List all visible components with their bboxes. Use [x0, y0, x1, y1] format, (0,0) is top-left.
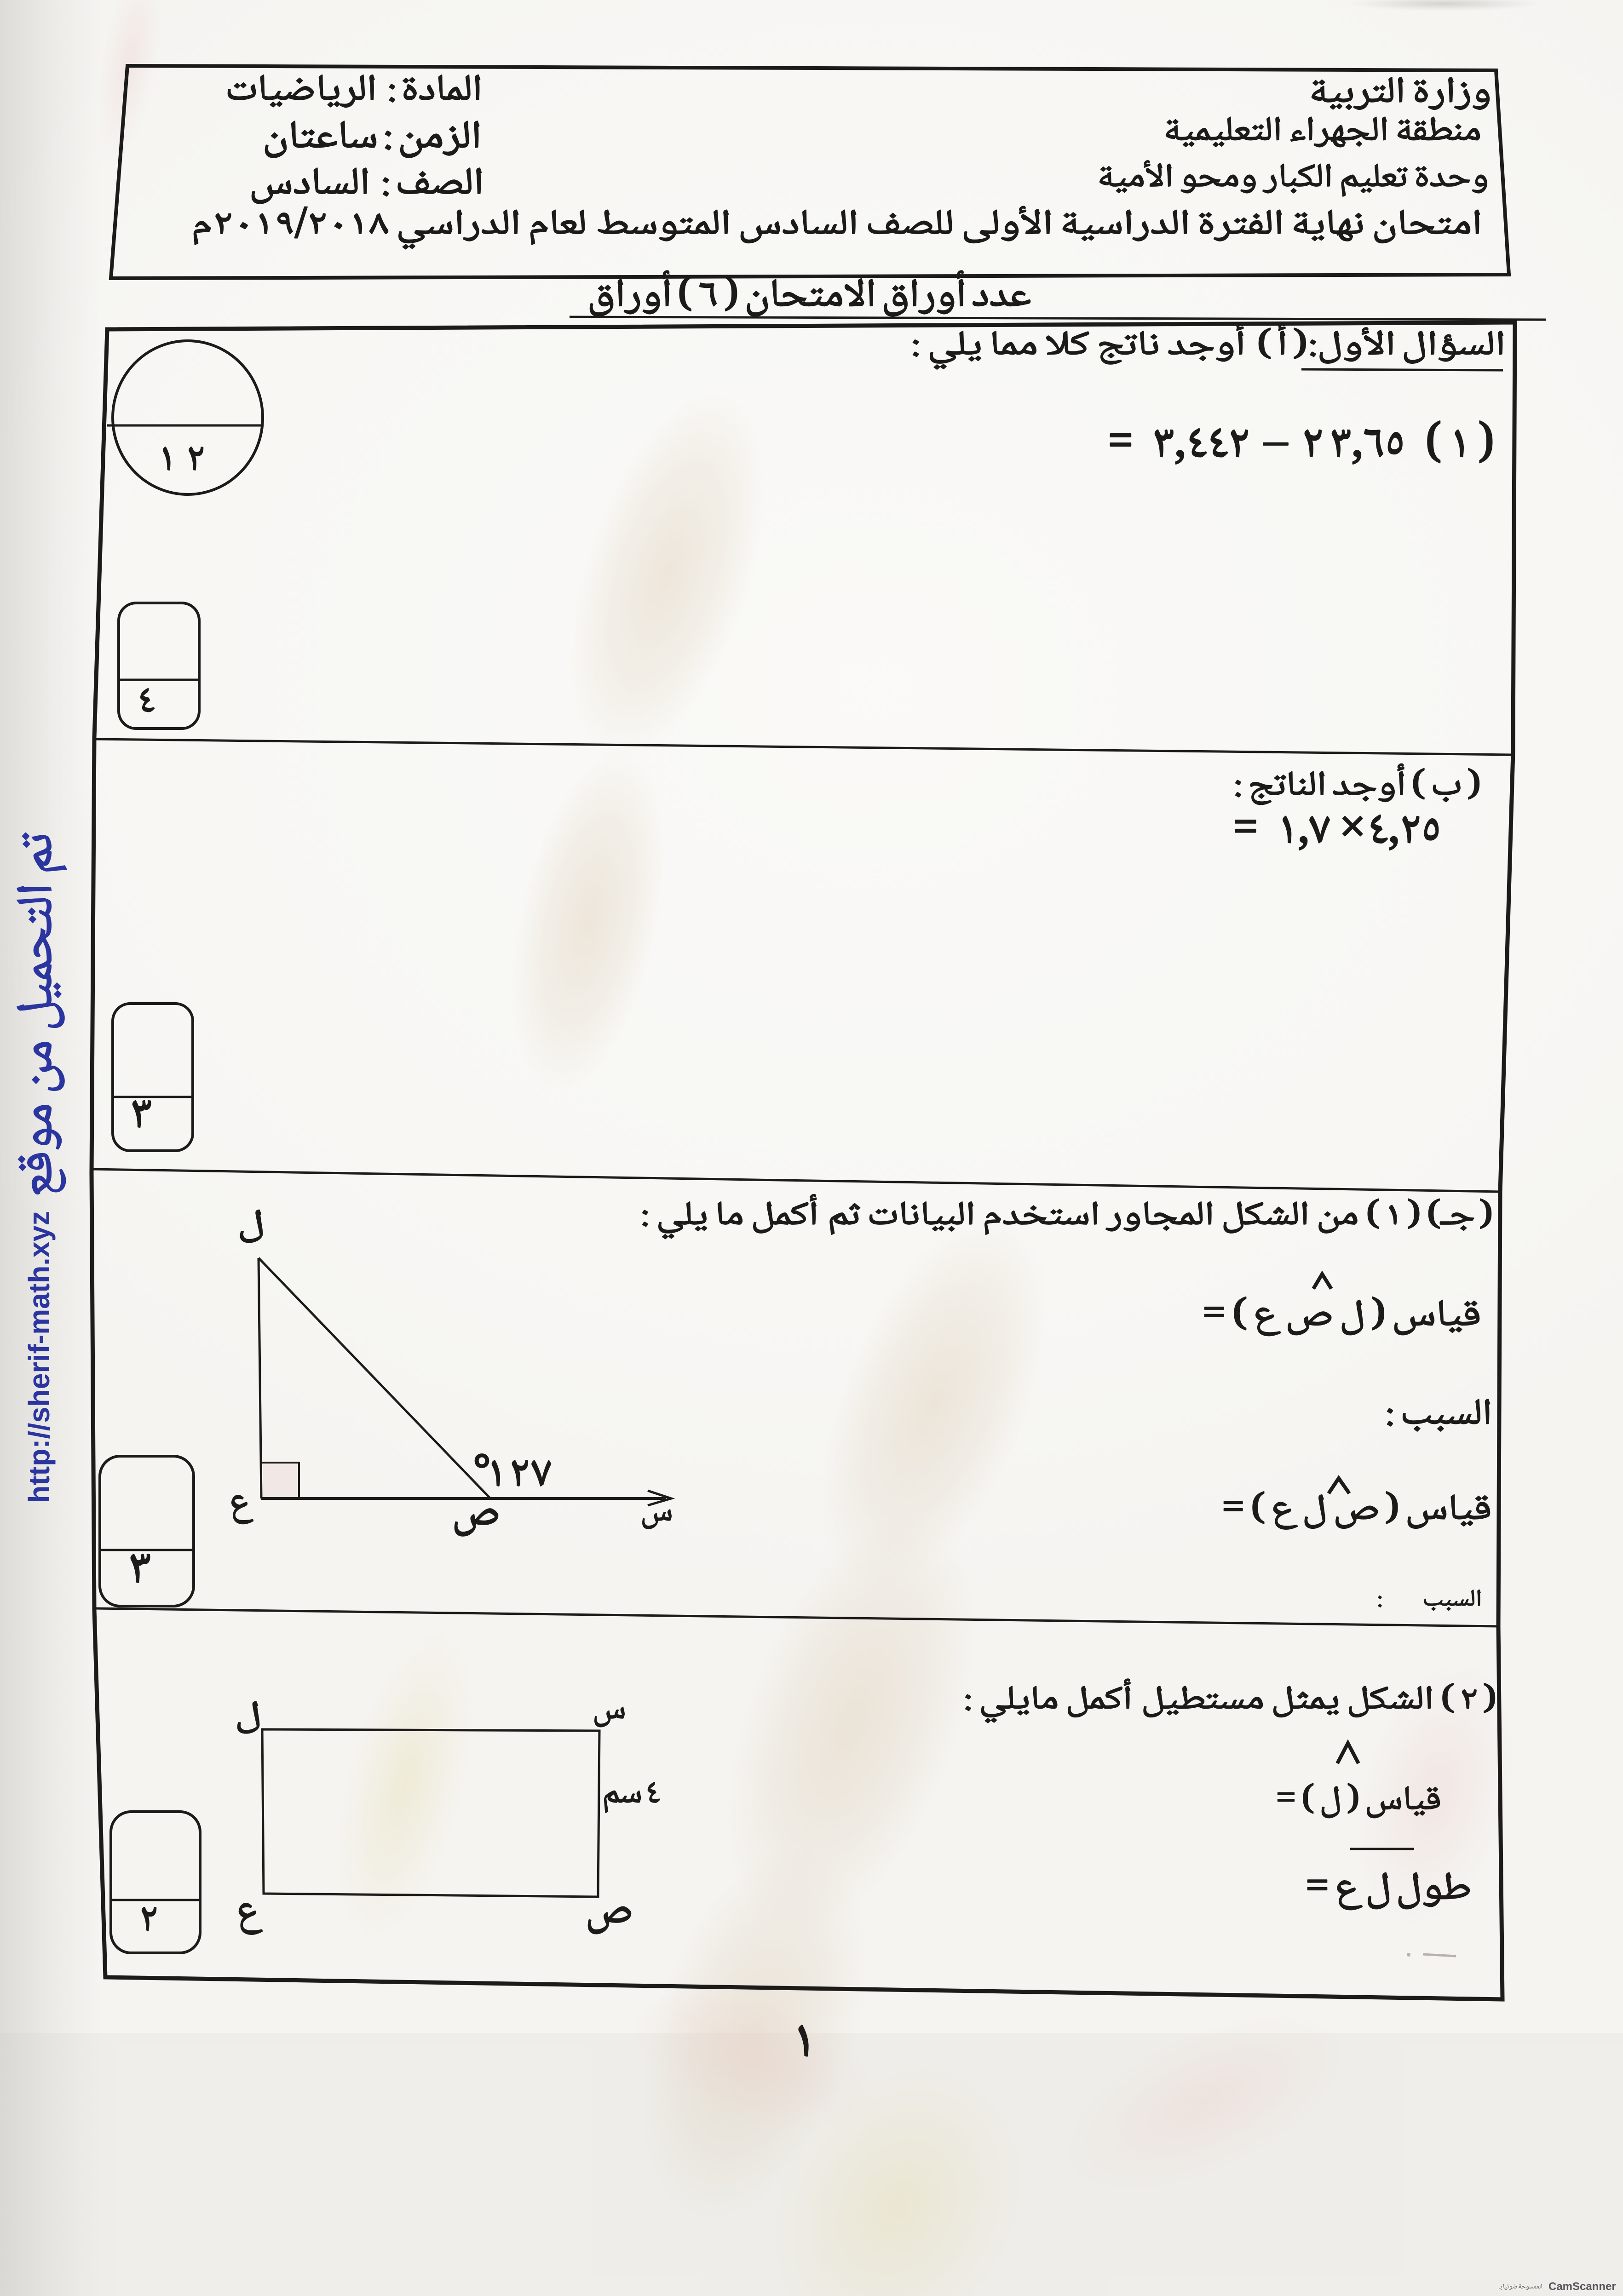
svg-text:CamScanner: CamScanner [1548, 2280, 1616, 2293]
svg-text:http://sherif-math.xyz: http://sherif-math.xyz [23, 1211, 56, 1503]
